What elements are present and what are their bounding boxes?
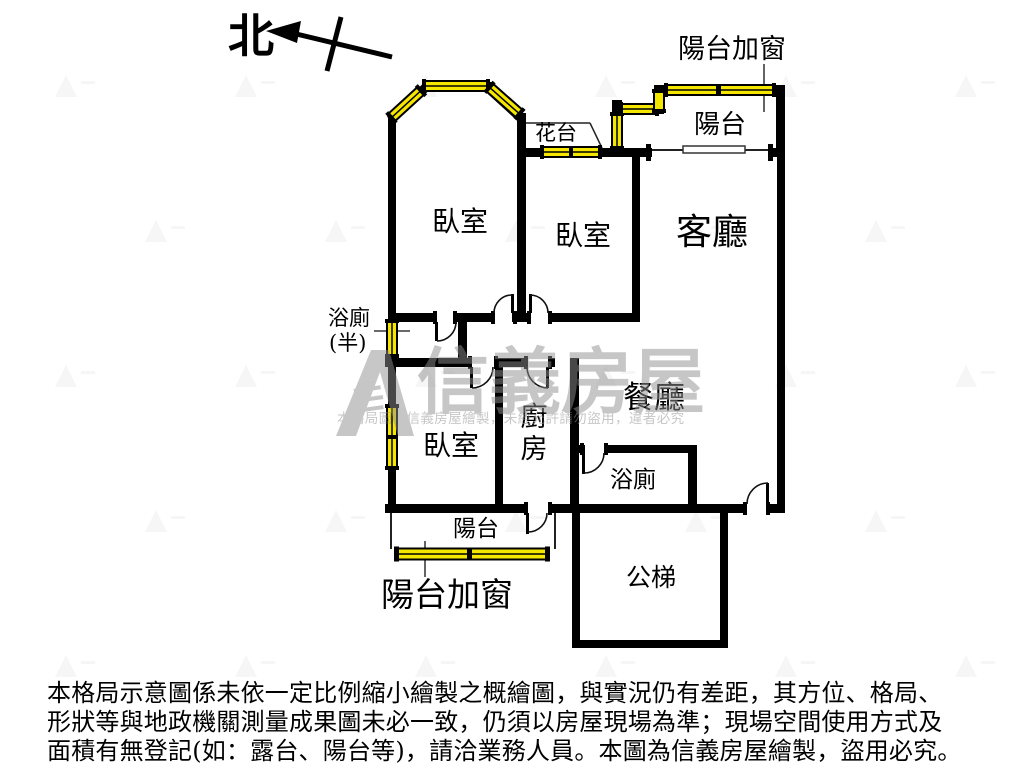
label-balcony-top: 陽台 [694,110,746,140]
window-chamfer-right [483,81,525,121]
label-flower-bed: 花台 [535,121,577,145]
label-half-bath-1: 浴廁 [328,306,370,330]
label-bathroom: 浴廁 [610,467,656,493]
disclaimer-line-3: 面積有無登記(如：露台、陽台等)，請洽業務人員。本圖為信義房屋繪製，盜用必究。 [47,737,997,766]
door-entry [747,483,769,504]
window-rear-balcony [394,547,550,562]
door-bedroom2 [529,294,548,313]
label-balcony-window-bottom: 陽台加窗 [381,575,513,614]
window-bedroom1-top [422,79,490,93]
window-balcony-step2 [652,89,666,113]
label-balcony-bottom: 陽台 [453,516,499,542]
label-bedroom-top-left: 臥室 [432,205,488,238]
window-balcony-left [610,112,624,150]
compass-arrow-shaft [288,32,392,57]
disclaimer-line-1: 本格局示意圖係未依一定比例縮小繪製之概繪圖，與實況仍有差距，其方位、格局、 [47,679,997,708]
label-bedroom-bottom: 臥室 [423,429,479,462]
door-bathroom [582,453,604,474]
label-living-room: 客廳 [676,212,748,253]
label-half-bath-2: (半) [329,331,366,355]
window-bedroom2-top [540,145,602,159]
floorplan-page: 臥室 臥室 客廳 餐廳 臥室 廚 房 浴廁 浴廁 (半) 陽台 陽台 陽台加窗 … [0,0,1024,768]
label-bedroom-top-middle: 臥室 [555,219,611,252]
sliding-door [683,146,745,153]
compass: 北 [228,9,392,71]
label-stairs: 公梯 [626,563,676,592]
disclaimer-block: 本格局示意圖係未依一定比例縮小繪製之概繪圖，與實況仍有差距，其方位、格局、 形狀… [47,679,997,766]
door-bedroom1 [494,294,514,313]
disclaimer-line-2: 形狀等與地政機關測量成果圖未必一致，仍須以房屋現場為準；現場空間使用方式及 [47,708,997,737]
window-balcony-top [664,83,776,97]
label-balcony-window-top: 陽台加窗 [678,34,786,65]
compass-north-label: 北 [228,9,274,63]
floor-plan-canvas: 臥室 臥室 客廳 餐廳 臥室 廚 房 浴廁 浴廁 (半) 陽台 陽台 陽台加窗 … [0,0,1024,768]
sinyi-logo-strokes [352,385,385,413]
window-chamfer-left [385,84,427,124]
label-kitchen-char2: 房 [521,434,548,465]
watermark-notice: 本格局圖為信義房屋繪製，未經允許請勿盜用，違者必究 [337,410,685,427]
